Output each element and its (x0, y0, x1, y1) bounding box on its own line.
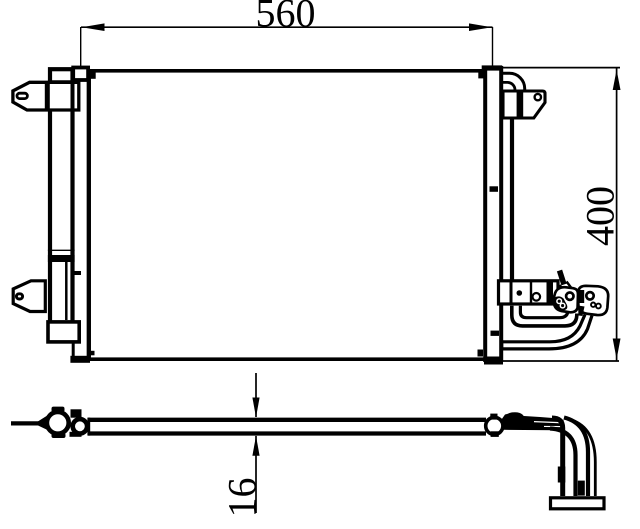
svg-text:16: 16 (220, 478, 265, 518)
svg-text:400: 400 (578, 186, 623, 246)
svg-text:560: 560 (256, 0, 316, 35)
